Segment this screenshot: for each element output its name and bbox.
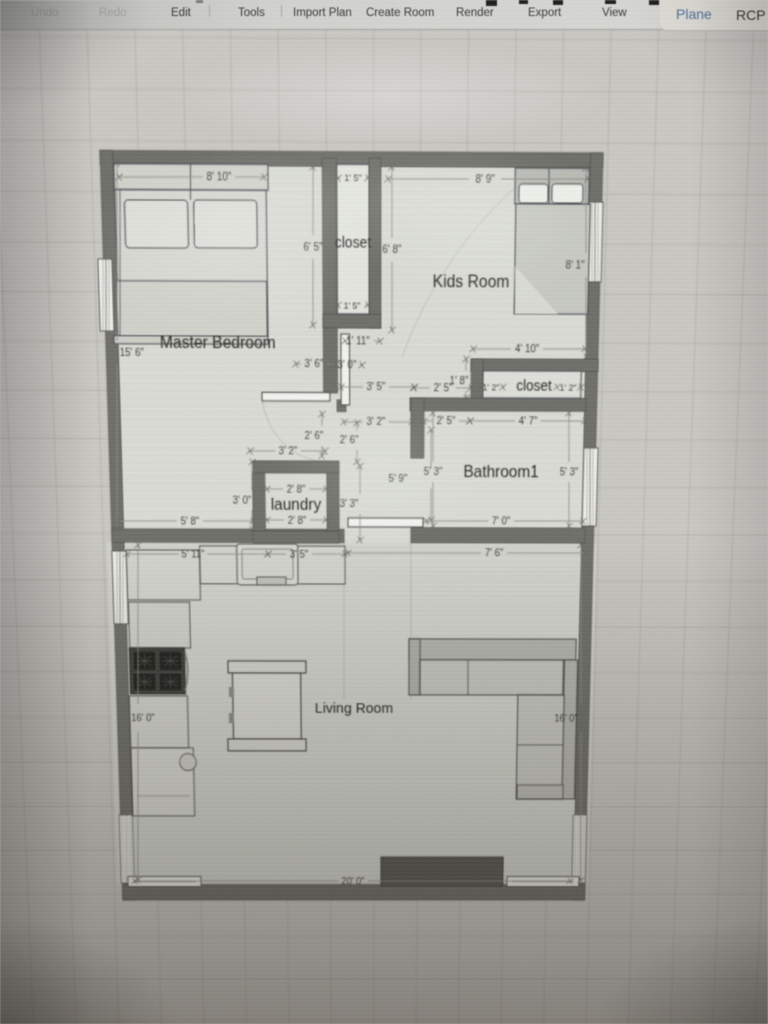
svg-text:3' 0": 3' 0" bbox=[233, 495, 252, 506]
svg-text:3' 2": 3' 2" bbox=[367, 417, 386, 429]
svg-text:3' 5": 3' 5" bbox=[367, 382, 386, 394]
svg-text:16' 0": 16' 0" bbox=[131, 713, 155, 724]
svg-text:1' 11": 1' 11" bbox=[346, 336, 370, 348]
svg-text:2' 5": 2' 5" bbox=[437, 416, 456, 428]
svg-text:1' 8": 1' 8" bbox=[450, 376, 469, 388]
svg-text:1' 5": 1' 5" bbox=[343, 301, 360, 312]
svg-text:6' 8": 6' 8" bbox=[382, 244, 401, 256]
svg-text:closet: closet bbox=[335, 236, 371, 252]
svg-text:3' 6": 3' 6" bbox=[304, 359, 323, 371]
svg-text:7' 6": 7' 6" bbox=[485, 548, 504, 559]
svg-text:3' 2": 3' 2" bbox=[279, 446, 298, 458]
svg-text:1' 5": 1' 5" bbox=[344, 173, 361, 184]
svg-text:2' 6": 2' 6" bbox=[340, 435, 359, 447]
svg-text:Kids Room: Kids Room bbox=[433, 272, 510, 291]
svg-text:6' 5": 6' 5" bbox=[303, 241, 322, 253]
svg-text:4' 10": 4' 10" bbox=[515, 344, 540, 356]
svg-text:3' 0": 3' 0" bbox=[338, 360, 357, 372]
svg-text:Living Room: Living Room bbox=[315, 701, 393, 716]
svg-text:laundry: laundry bbox=[271, 496, 322, 514]
svg-text:16' 0": 16' 0" bbox=[554, 713, 578, 724]
svg-text:20' 0": 20' 0" bbox=[341, 877, 364, 887]
svg-text:Bathroom1: Bathroom1 bbox=[463, 463, 539, 481]
svg-text:2' 8": 2' 8" bbox=[287, 484, 306, 495]
svg-text:1' 2": 1' 2" bbox=[559, 383, 576, 394]
svg-text:7' 0": 7' 0" bbox=[492, 516, 511, 527]
svg-text:1' 2": 1' 2" bbox=[482, 383, 499, 394]
svg-text:3' 3": 3' 3" bbox=[340, 499, 359, 510]
svg-text:5' 11": 5' 11" bbox=[181, 549, 205, 560]
svg-text:Master Bedroom: Master Bedroom bbox=[160, 333, 276, 352]
svg-text:closet: closet bbox=[516, 379, 552, 395]
svg-text:3' 5": 3' 5" bbox=[290, 549, 309, 560]
svg-text:15' 6": 15' 6" bbox=[120, 348, 145, 360]
svg-text:5' 8": 5' 8" bbox=[181, 516, 200, 527]
svg-text:4' 7": 4' 7" bbox=[519, 416, 538, 428]
svg-text:5' 3": 5' 3" bbox=[424, 467, 443, 479]
svg-text:8' 1": 8' 1" bbox=[565, 259, 585, 271]
svg-text:5' 3": 5' 3" bbox=[560, 467, 579, 479]
svg-text:2' 8": 2' 8" bbox=[288, 515, 307, 526]
svg-text:8' 10": 8' 10" bbox=[206, 171, 231, 183]
svg-text:8' 9": 8' 9" bbox=[475, 173, 495, 185]
svg-text:5' 9": 5' 9" bbox=[389, 473, 408, 485]
svg-text:2' 6": 2' 6" bbox=[305, 431, 324, 443]
